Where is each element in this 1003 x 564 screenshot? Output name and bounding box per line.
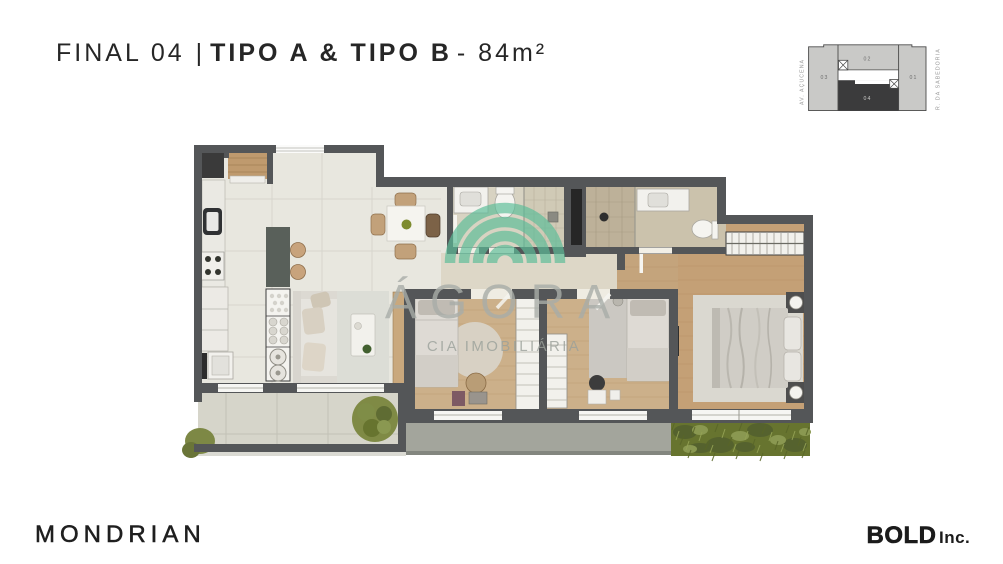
svg-text:R. DA SABEDORIA: R. DA SABEDORIA — [936, 48, 942, 110]
svg-text:02: 02 — [864, 56, 872, 62]
svg-text:ÁGORA: ÁGORA — [385, 276, 623, 329]
svg-text:BOLD: BOLD — [867, 522, 937, 549]
svg-text:01: 01 — [910, 75, 918, 81]
svg-text:03: 03 — [821, 75, 829, 81]
svg-text:MONDRIAN: MONDRIAN — [35, 521, 206, 548]
svg-text:Inc.: Inc. — [939, 528, 970, 547]
svg-text:04: 04 — [864, 96, 872, 102]
svg-text:AV. AÇUCENA: AV. AÇUCENA — [800, 59, 806, 105]
svg-text:FINAL 04 |TIPO A & TIPO B- 84m: FINAL 04 |TIPO A & TIPO B- 84m² — [56, 39, 547, 67]
svg-text:CIA IMOBILIÁRIA: CIA IMOBILIÁRIA — [427, 338, 581, 355]
